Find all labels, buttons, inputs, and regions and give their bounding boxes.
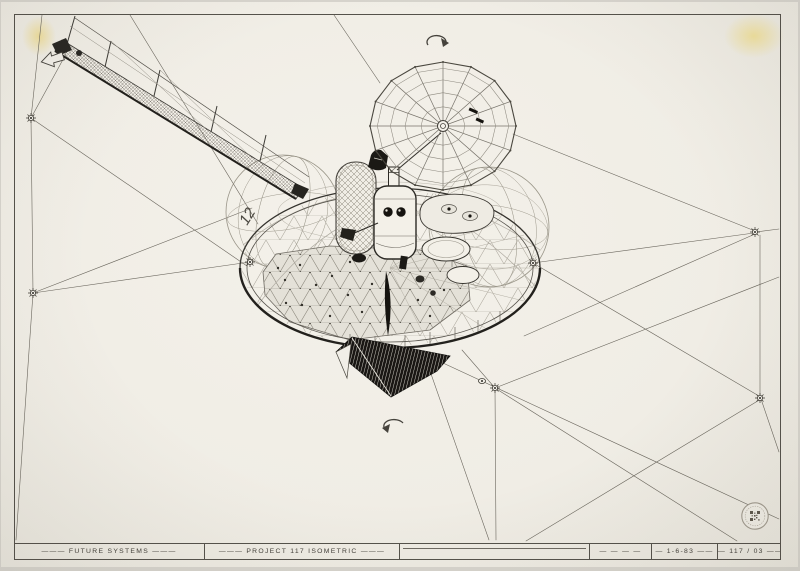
title-cell-project: ——— PROJECT 117 ISOMETRIC ———	[204, 544, 399, 559]
title-cell-dashes: — — — —	[589, 544, 651, 559]
solar-panel	[336, 337, 450, 397]
rotation-arrow-bottom-icon	[382, 420, 403, 433]
quilted-capsule	[336, 162, 376, 254]
porthole-window-left	[383, 207, 392, 216]
title-block: ——— FUTURE SYSTEMS ——— ——— PROJECT 117 I…	[14, 543, 780, 559]
qr-seal-stamp	[742, 503, 768, 529]
parasol-hub	[438, 121, 449, 132]
porthole-window-right	[396, 207, 405, 216]
title-cell-number: — 117 / 03 ——	[717, 544, 780, 559]
capsule-module	[374, 186, 416, 259]
title-cell-date: — 1-6-83 ——	[651, 544, 717, 559]
title-cell-blank	[399, 544, 589, 559]
title-cell-firm: ——— FUTURE SYSTEMS ———	[14, 544, 204, 559]
parasol-canopy	[369, 61, 517, 191]
rotation-arrow-top-icon	[427, 36, 449, 47]
cable-connector	[479, 379, 486, 384]
direction-arrow-icon	[40, 50, 65, 69]
blank-cell-rule	[403, 548, 586, 549]
control-panel	[420, 194, 494, 233]
access-gangway	[52, 16, 309, 199]
isometric-drawing: 12	[0, 0, 800, 571]
round-deck-pad-small	[447, 267, 479, 284]
drawing-sheet-photo: 12	[0, 0, 800, 571]
sphere-number-label: 12	[236, 204, 260, 228]
